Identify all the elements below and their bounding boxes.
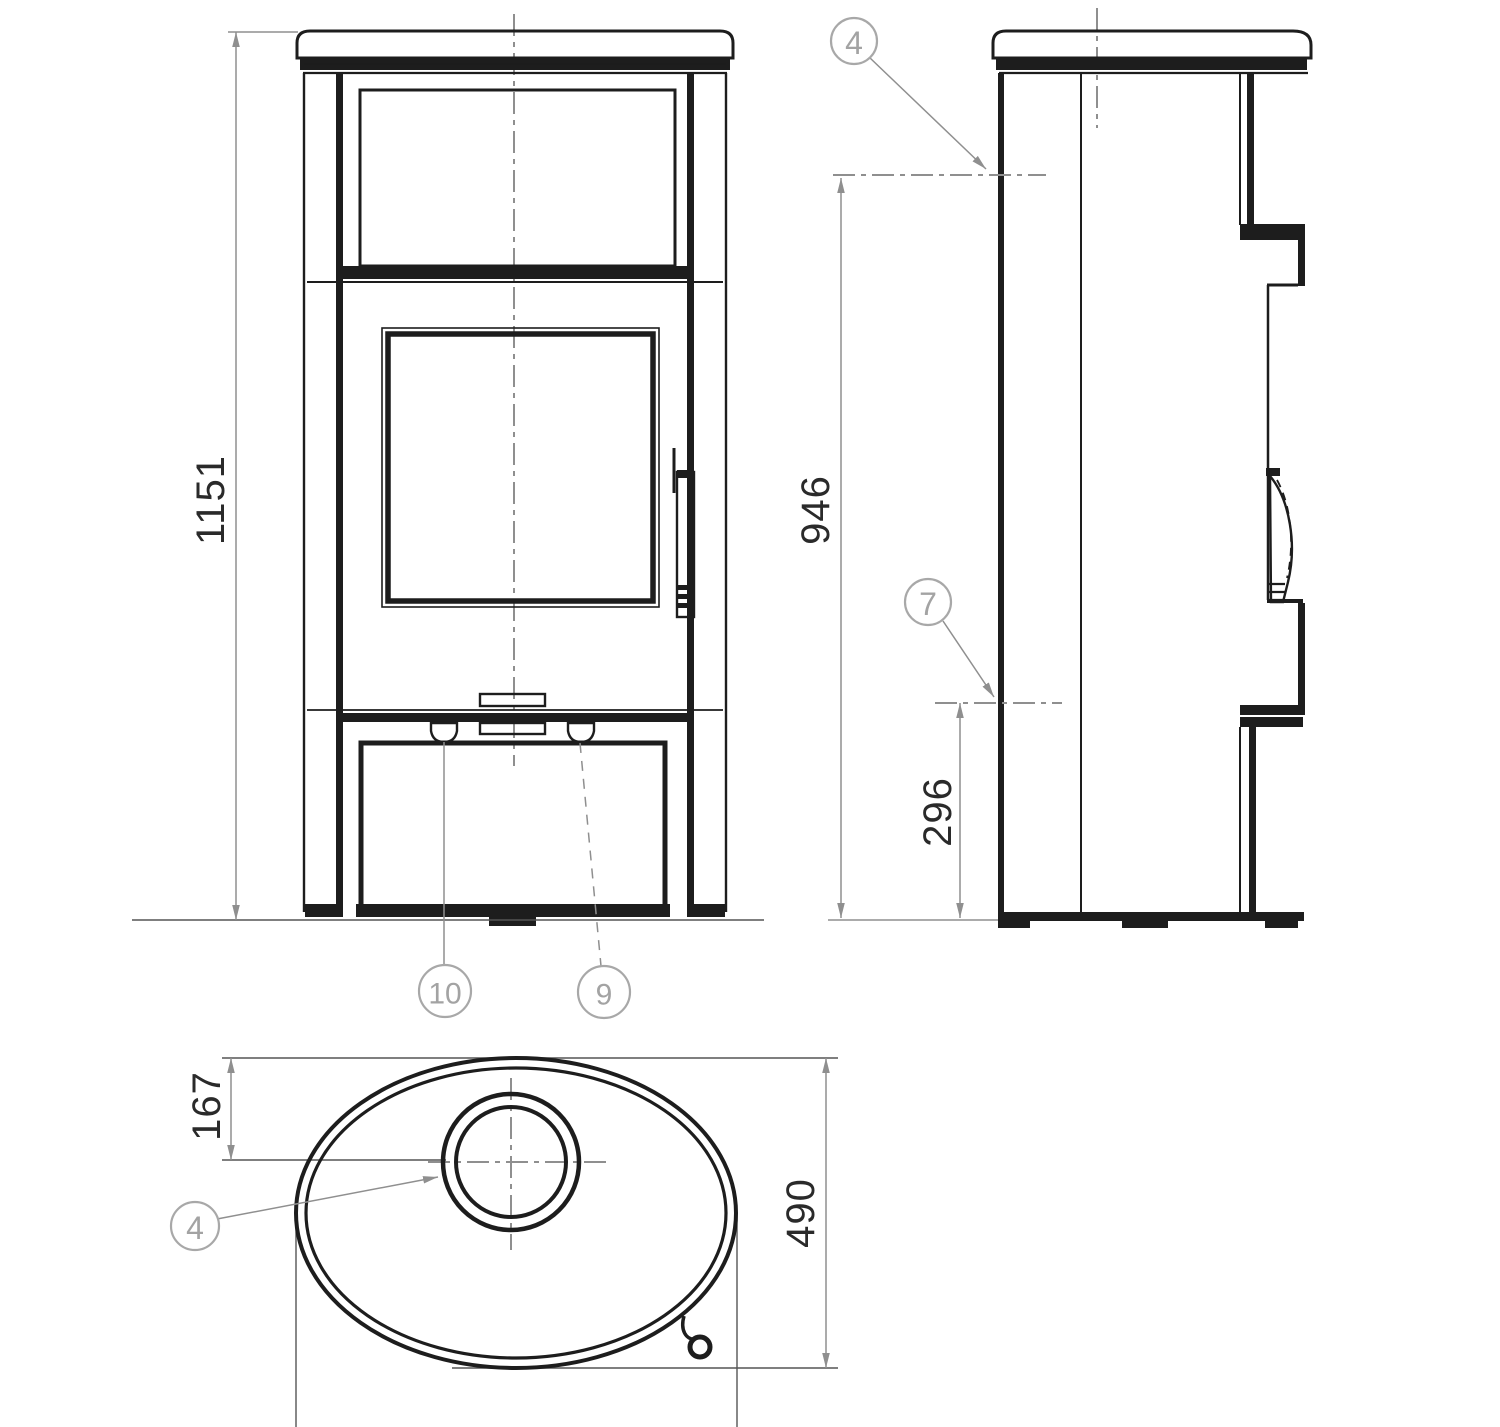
- side-lower-divider-band: [1240, 705, 1305, 715]
- top-handle-loop: [690, 1337, 710, 1357]
- callout-front-left-knob-label: 10: [428, 978, 461, 1011]
- door-frame-outline: [382, 328, 659, 607]
- dimension-overall-height-text: 1151: [189, 455, 233, 545]
- side-base-front-edge: [1249, 727, 1256, 915]
- right-control-knob: [568, 723, 594, 742]
- top-plate-inner-oval: [306, 1068, 726, 1358]
- front-upper-divider-band: [340, 266, 690, 279]
- callout-side-lower-outlet: 7: [905, 579, 1062, 703]
- side-middle-foot: [1122, 921, 1168, 928]
- dimension-lower-outlet-height: 296: [916, 703, 960, 918]
- top-handle-stem: [683, 1316, 695, 1339]
- side-divider-ledge: [1240, 224, 1305, 240]
- stove-dimension-drawing: 1151: [0, 0, 1500, 1427]
- door-glass-window: [388, 334, 653, 601]
- top-plate-outer-oval: [296, 1058, 736, 1368]
- front-center-foot: [489, 917, 536, 926]
- front-left-foot: [305, 904, 343, 917]
- dimension-lower-outlet-height-text: 296: [916, 777, 960, 847]
- front-left-column-bar: [336, 73, 343, 912]
- side-view: [828, 8, 1311, 928]
- left-control-knob: [431, 723, 457, 742]
- callout-side-flue-outlet-label: 4: [845, 25, 863, 61]
- top-view: [222, 1058, 838, 1427]
- air-slot-lower: [480, 723, 545, 734]
- air-slot-upper: [480, 694, 545, 706]
- side-top-plate-band: [996, 57, 1307, 70]
- dimension-depth-text: 490: [779, 1178, 823, 1248]
- side-front-foot: [1265, 921, 1298, 928]
- callout-side-lower-outlet-label: 7: [919, 586, 937, 622]
- technical-drawing-page: 1151: [0, 0, 1500, 1427]
- dimension-flue-center-offset: 167: [185, 1058, 231, 1160]
- dimension-flue-outlet-height-text: 946: [794, 475, 838, 545]
- dimension-flue-outlet-height: 946: [794, 178, 841, 918]
- dimension-flue-center-offset-text: 167: [185, 1071, 229, 1141]
- wood-compartment-panel: [360, 90, 675, 266]
- callout-front-left-knob: 10: [419, 742, 471, 1017]
- door-handle-side: [1266, 468, 1292, 602]
- callout-side-flue-outlet: 4: [831, 18, 1046, 175]
- base-compartment: [361, 743, 665, 911]
- callout-front-right-knob: 9: [578, 743, 630, 1018]
- side-upper-front-edge: [1247, 73, 1254, 225]
- side-top-plate: [993, 31, 1311, 58]
- dimension-depth: 490: [779, 1058, 826, 1368]
- front-lower-divider-band: [340, 713, 690, 722]
- callout-top-flue-collar-label: 4: [186, 1210, 204, 1246]
- side-back-edge: [998, 73, 1004, 918]
- front-right-foot: [687, 904, 725, 917]
- side-rear-foot: [998, 921, 1030, 928]
- dimension-overall-height: 1151: [189, 32, 298, 920]
- callout-front-right-knob-label: 9: [596, 979, 613, 1012]
